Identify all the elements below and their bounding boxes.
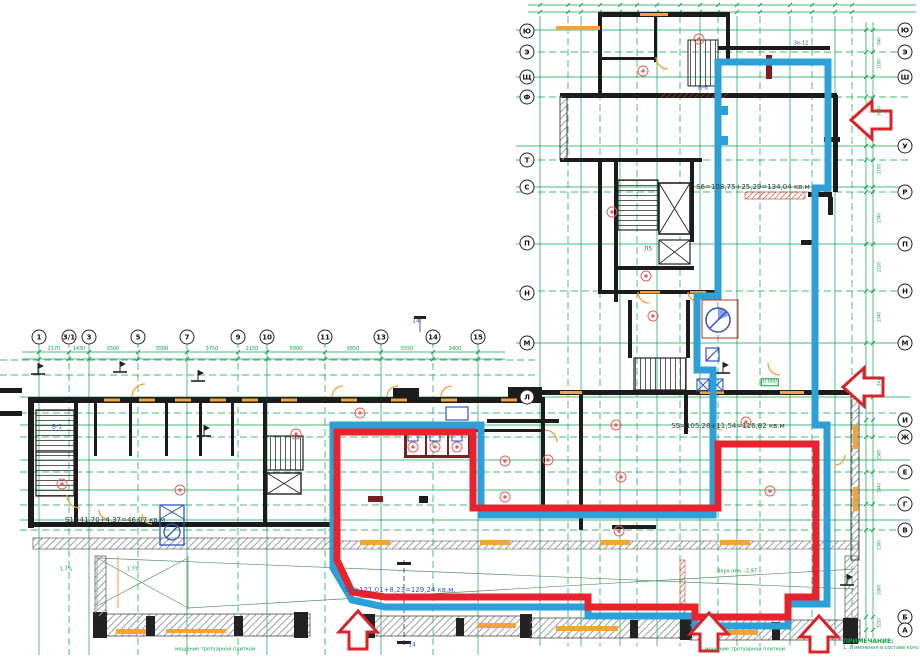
area-label-s6: S6=108,75+25,29=134,04 кв.м [696, 184, 810, 192]
room-marker-icon [641, 271, 652, 282]
axis-bubble: 3 [82, 330, 97, 345]
dimension-number: 3850 [347, 346, 360, 352]
axis-bubble: Э [520, 45, 535, 60]
axis-bubble: Т [520, 153, 535, 168]
axis-bubble: Л [520, 390, 535, 405]
room-marker-icon [765, 486, 776, 497]
notes-heading: ПРИМЕЧАНИЕ: [843, 638, 919, 645]
labels-layer: 13/135791011131415ЮЭЩФТСПНМЛЮЭШУРПНМИЖЕГ… [0, 0, 920, 660]
dimension-number: 3080 [877, 106, 882, 116]
room-marker-icon [355, 408, 366, 419]
room-label: В-6 [698, 86, 708, 93]
axis-bubble: М [898, 336, 913, 351]
axis-bubble: 13 [374, 330, 389, 345]
area-label-s1: S1=41,70+4,37=46,07 кв.м [65, 517, 165, 525]
area-label-s5: S5=105,28+11,54=116,82 кв.м [671, 423, 785, 431]
axis-bubble: Ф [520, 90, 535, 105]
room-label: Зн-12 [794, 41, 809, 47]
axis-bubble: 7 [180, 330, 195, 345]
dimension-number: 3500 [107, 346, 120, 352]
dimension-number: 1440 [877, 483, 882, 493]
dimension-number: 1180 [877, 59, 882, 69]
room-marker-icon [614, 526, 625, 537]
dimension-number: 2280 [877, 540, 882, 550]
room-marker-icon [694, 34, 705, 45]
room-marker-icon [741, 417, 752, 428]
slope-label: 1.7% [127, 567, 140, 573]
slope-label: 1.7% [60, 567, 73, 573]
room-marker-icon [648, 311, 659, 322]
axis-bubble: А [898, 623, 913, 638]
axis-bubble: П [520, 236, 535, 251]
axis-bubble: Н [898, 284, 913, 299]
axis-bubble: Ю [520, 24, 535, 39]
room-marker-icon [638, 66, 649, 77]
dimension-number: 1430 [73, 346, 86, 352]
dimension-number: 3220 [877, 618, 882, 628]
area-label-s2: S2=121,01+8,23=129,24 кв.м. [344, 587, 455, 595]
room-marker-icon [175, 485, 186, 496]
axis-bubble: М [520, 336, 535, 351]
room-label: Л5 [644, 247, 652, 254]
dimension-number: 3470 [877, 376, 882, 386]
axis-bubble: 9 [231, 330, 246, 345]
axis-bubble: У [898, 139, 913, 154]
dimension-number: 1060 [877, 585, 882, 595]
axis-bubble: Н [520, 286, 535, 301]
axis-bubble: С [520, 180, 535, 195]
axis-bubble: Е [898, 465, 913, 480]
room-marker-icon [500, 492, 511, 503]
dimension-number: 5800 [290, 346, 303, 352]
axis-bubble: 14 [426, 330, 441, 345]
dimension-number: 3400 [449, 346, 462, 352]
room-marker-icon [607, 207, 618, 218]
room-marker-icon [543, 455, 554, 466]
axis-bubble: Р [898, 185, 913, 200]
axis-bubble: 11 [318, 330, 333, 345]
axis-bubble: Ш [898, 70, 913, 85]
dimension-number: 1580 [877, 450, 882, 460]
notes-block: ПРИМЕЧАНИЕ: 1. Изменения в составе конст… [843, 638, 919, 651]
axis-bubble: П [898, 237, 913, 252]
dimension-number: 3500 [156, 346, 169, 352]
floor-plan-canvas: 13/135791011131415ЮЭЩФТСПНМЛЮЭШУРПНМИЖЕГ… [0, 0, 920, 660]
room-marker-icon [57, 479, 68, 490]
section-label: 14 [412, 319, 420, 326]
dimension-number: 2340 [877, 312, 882, 322]
axis-bubble: Ж [898, 430, 913, 445]
section-label: 14 [408, 643, 416, 650]
dimension-number: 2170 [48, 346, 61, 352]
room-marker-icon [452, 442, 463, 453]
room-marker-icon [291, 429, 302, 440]
axis-bubble: Э [898, 45, 913, 60]
room-marker-icon [430, 442, 441, 453]
dimension-number: 940 [877, 37, 882, 45]
axis-bubble: 3/1 [62, 330, 77, 345]
room-marker-icon [616, 472, 627, 483]
notes-line: 1. Изменения в составе конструкций [843, 645, 919, 651]
axis-bubble: 1 [32, 330, 47, 345]
room-label: В-1 [52, 425, 62, 432]
axis-bubble: В [898, 523, 913, 538]
axis-bubble: Щ [520, 70, 535, 85]
dimension-number: 2150 [246, 346, 259, 352]
paving-note: мощение тротуарной плиткой [705, 647, 785, 653]
axis-bubble: Г [898, 497, 913, 512]
paving-note: мощение тротуарной плиткой [175, 647, 255, 653]
dimension-number: 2340 [877, 213, 882, 223]
dimension-number: 2100 [877, 262, 882, 272]
axis-bubble: И [898, 413, 913, 428]
room-marker-icon [408, 442, 419, 453]
axis-bubble: 5 [131, 330, 146, 345]
axis-bubble: Ю [898, 23, 913, 38]
room-marker-icon [500, 456, 511, 467]
terrace-note: Верх отм. -2.97 [717, 569, 757, 575]
elevation-label: 0.000 [761, 378, 779, 386]
dimension-number: 2100 [877, 164, 882, 174]
axis-bubble: 15 [471, 330, 486, 345]
dimension-number: 3550 [401, 346, 414, 352]
axis-bubble: 10 [260, 330, 275, 345]
room-marker-icon [611, 420, 622, 431]
dimension-number: 3750 [206, 346, 219, 352]
